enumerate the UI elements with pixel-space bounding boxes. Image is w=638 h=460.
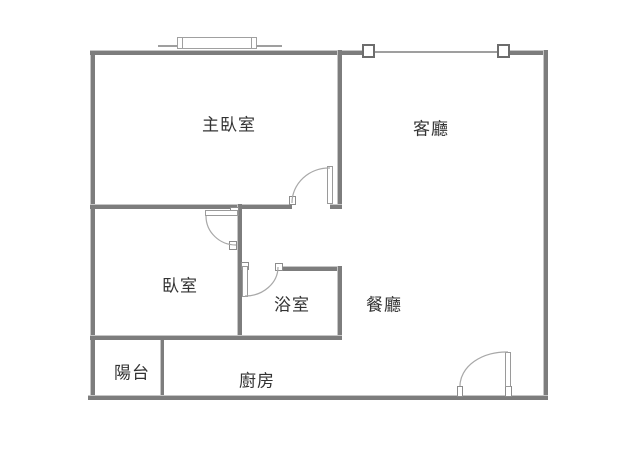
wall-master-bottom-left xyxy=(90,204,292,209)
bay-window-mullion-right xyxy=(251,38,252,48)
wall-bathroom-top xyxy=(280,266,342,271)
wall-bedroom-row-bottom xyxy=(90,335,342,340)
wall-master-right xyxy=(337,50,342,208)
bedroom-door-leaf xyxy=(205,210,238,216)
room-label-balcony: 陽台 xyxy=(114,359,150,384)
bathroom-door-leaf xyxy=(242,266,248,297)
wall-outer-right xyxy=(543,50,548,400)
wall-outer-top-left xyxy=(90,50,364,55)
room-label-dining-room: 餐廳 xyxy=(366,291,402,316)
bay-window-icon xyxy=(177,37,257,49)
room-label-master-bedroom: 主臥室 xyxy=(202,111,256,136)
master-door-arc-icon xyxy=(292,168,330,203)
wall-outer-left xyxy=(90,50,95,400)
bay-window-ledge-right xyxy=(253,45,282,47)
entrance-door-leaf xyxy=(505,352,511,387)
entrance-door-arc-icon xyxy=(460,352,508,386)
column-right-icon xyxy=(497,44,510,58)
room-label-living-room: 客廳 xyxy=(413,115,449,140)
room-label-bathroom: 浴室 xyxy=(274,291,310,316)
entrance-door-jamb-left xyxy=(457,386,463,397)
wall-balcony-divider xyxy=(160,340,164,395)
living-room-window-line xyxy=(375,51,498,53)
room-label-bedroom: 臥室 xyxy=(162,272,198,297)
bedroom-door-jamb xyxy=(229,241,237,250)
wall-outer-bottom xyxy=(88,395,548,400)
floor-plan: 主臥室 客廳 臥室 浴室 餐廳 陽台 廚房 xyxy=(0,0,638,460)
wall-bathroom-right xyxy=(337,266,342,340)
bay-window-mullion-left xyxy=(182,38,183,48)
wall-master-bottom-right xyxy=(330,204,342,209)
room-label-kitchen: 廚房 xyxy=(239,367,275,392)
master-door-leaf xyxy=(327,166,333,204)
entrance-door-jamb-right xyxy=(505,386,512,397)
bathroom-door-jamb xyxy=(275,263,283,271)
column-left-icon xyxy=(362,44,375,58)
master-door-jamb xyxy=(289,196,296,205)
